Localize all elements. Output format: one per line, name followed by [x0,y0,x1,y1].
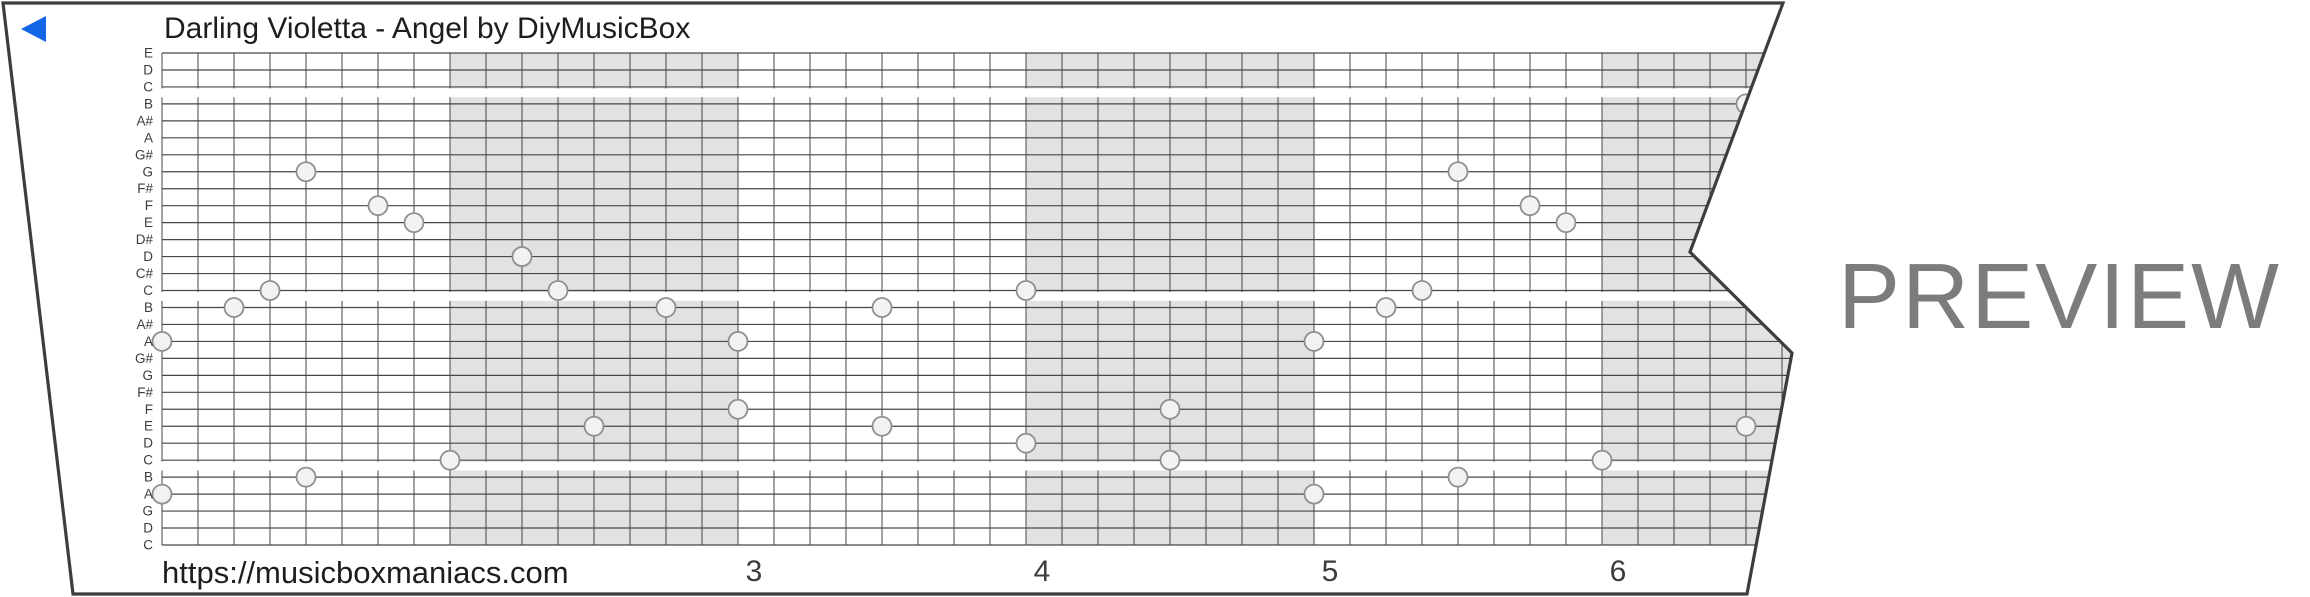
note-label: F# [137,181,153,196]
note-label: D# [136,232,154,247]
note-dot [369,196,388,215]
note-label: C [143,79,153,94]
note-label: G# [135,351,154,366]
note-label: C [143,283,153,298]
note-dot [585,417,604,436]
note-label: G [142,368,153,383]
strip-title: Darling Violetta - Angel by DiyMusicBox [164,12,690,45]
measure-number: 4 [1034,555,1051,588]
note-dot [225,298,244,317]
octave-break-stripe [161,462,1801,471]
note-dot [729,332,748,351]
note-label: A# [136,113,153,128]
preview-watermark: PREVIEW [1838,250,2281,343]
note-label: C [143,453,153,468]
note-label: B [144,300,153,315]
note-label: B [144,470,153,485]
note-dot [1413,281,1432,300]
note-dot [549,281,568,300]
note-label: A [144,487,153,502]
note-dot [1377,298,1396,317]
note-label: F [145,402,153,417]
note-label: B [144,96,153,111]
note-label: F [145,198,153,213]
note-label: D [143,521,153,536]
note-dot [1017,434,1036,453]
note-dot [405,213,424,232]
note-dot [657,298,676,317]
note-dot [153,485,172,504]
note-label: E [144,215,153,230]
note-dot [1737,417,1756,436]
note-label: G# [135,147,154,162]
note-dot [297,468,316,487]
note-label: G [142,504,153,519]
note-label: A [144,130,153,145]
note-label: C [143,537,153,552]
note-dot [1305,332,1324,351]
note-label: D [143,249,153,264]
note-dot [1449,468,1468,487]
note-label: D [143,436,153,451]
note-label: F# [137,385,153,400]
note-dot [1557,213,1576,232]
footer-url: https://musicboxmaniacs.com [162,555,569,590]
note-label: C# [136,266,154,281]
note-dot [1593,451,1612,470]
measure-number: 5 [1322,555,1339,588]
octave-break-stripe [161,88,1801,97]
note-dot [729,400,748,419]
note-dot [873,417,892,436]
note-dot [1017,281,1036,300]
note-label: E [144,419,153,434]
note-dot [1449,162,1468,181]
measure-number: 3 [746,555,763,588]
note-label: D [143,62,153,77]
note-dot [297,162,316,181]
note-dot [261,281,280,300]
octave-break-stripe [161,292,1801,301]
note-dot [1521,196,1540,215]
note-label: G [142,164,153,179]
note-dot [1161,400,1180,419]
musicboxmaniacs-preview-page: EDCBA#AG#GF#FED#DC#CBA#AG#GF#FEDCBAGDCDa… [0,0,2310,597]
note-label: A [144,334,153,349]
note-dot [1305,485,1324,504]
note-dot [1161,451,1180,470]
note-label: A# [136,317,153,332]
note-dot [513,247,532,266]
note-label: E [144,46,153,61]
note-dot [441,451,460,470]
note-dot [153,332,172,351]
note-dot [873,298,892,317]
measure-number: 6 [1610,555,1627,588]
